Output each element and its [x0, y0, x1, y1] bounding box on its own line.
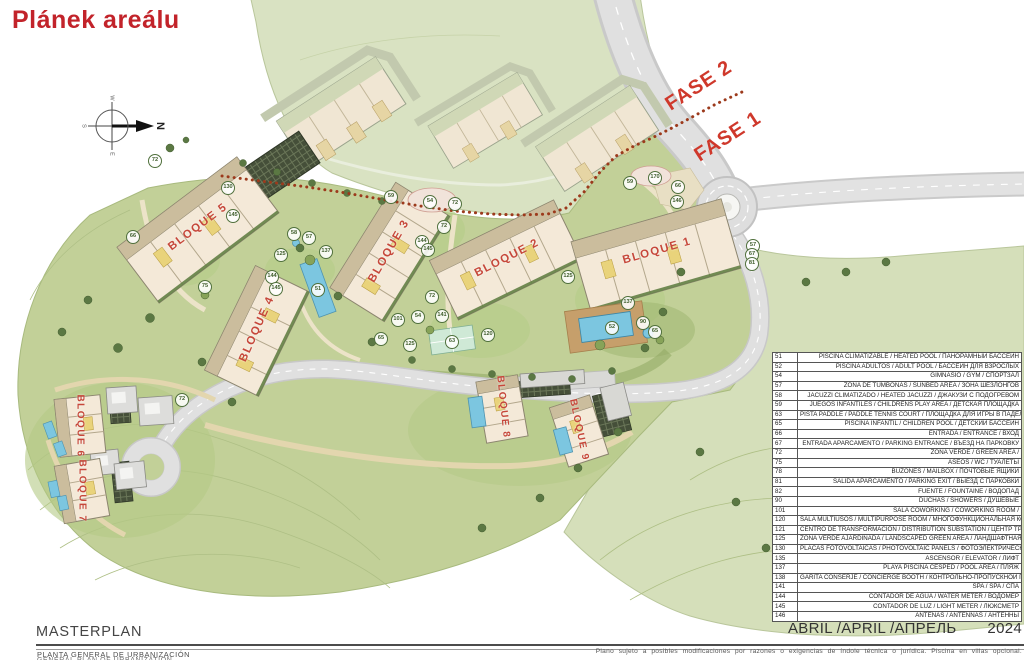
legend-description: JACUZZI CLIMATIZADO / HEATED JACUZZI / Д… [798, 391, 1022, 401]
block-label: BLOQUE 6 [75, 394, 86, 457]
legend-description: PLAYA PISCINA CESPED / POOL AREA / ПЛЯЖ [798, 564, 1022, 574]
legend-description: PISCINA ADULTOS / ADULT POOL / БАССЕЙН Д… [798, 362, 1022, 372]
map-badge-72: 72 [175, 393, 189, 407]
map-badge-101: 101 [391, 313, 405, 327]
map-badge-66: 66 [126, 230, 140, 244]
map-badge-130: 130 [221, 181, 235, 195]
legend-number: 81 [773, 477, 798, 487]
map-badge-81: 81 [745, 257, 759, 271]
map-badge-65: 65 [374, 332, 388, 346]
legend-description: ZONA VERDE AJARDINADA / LANDSCAPED GREEN… [798, 535, 1022, 545]
compass-e-label: E [109, 152, 115, 156]
map-badge-125: 125 [403, 338, 417, 352]
legend-description: FUENTE / FOUNTAINE / ВОДОПАД [798, 487, 1022, 497]
legend-row: 72ZONA VERDE / GREEN AREA / [773, 448, 1022, 458]
map-badge-72: 72 [425, 290, 439, 304]
page-title: Plánek areálu [12, 6, 180, 35]
map-badge-72: 72 [437, 220, 451, 234]
date-row: ABRIL /APRIL /АПРЕЛЬ 2024 [788, 620, 1022, 637]
legend-row: 75ASEOS / WC / ТУАЛЕТЫ [773, 458, 1022, 468]
legend-row: 121CENTRO DE TRANSFORMACIÓN / DISTRIBUTI… [773, 525, 1022, 535]
map-badge-57: 57 [302, 231, 316, 245]
legend-number: 125 [773, 535, 798, 545]
legend-row: 135ASCENSOR / ELEVATOR / ЛИФТ [773, 554, 1022, 564]
legend-number: 135 [773, 554, 798, 564]
legend-description: CENTRO DE TRANSFORMACIÓN / DISTRIBUTION … [798, 525, 1022, 535]
legend-description: SALA COWORKING / COWORKING ROOM / [798, 506, 1022, 516]
legend-row: 65PISCINA INFANTIL / CHILDREN POOL / ДЕТ… [773, 420, 1022, 430]
legend-number: 72 [773, 448, 798, 458]
legend-row: 125ZONA VERDE AJARDINADA / LANDSCAPED GR… [773, 535, 1022, 545]
legend-row: 120SALA MULTIUSOS / MULTIPURPOSE ROOM / … [773, 516, 1022, 526]
map-badge-52: 52 [605, 321, 619, 335]
legend-row: 66ENTRADA / ENTRANCE / ВХОД [773, 429, 1022, 439]
legend-number: 145 [773, 602, 798, 612]
legend-description: GIMNASIO / GYM / СПОРТЗАЛ [798, 372, 1022, 382]
legend-description: PISCINA CLIMATIZABLE / HEATED POOL / ПАН… [798, 353, 1022, 363]
legend-number: 137 [773, 564, 798, 574]
legend-number: 51 [773, 353, 798, 363]
legend-row: 130PLACAS FOTOVOLTAICAS / PHOTOVOLTAIC P… [773, 544, 1022, 554]
map-badge-59: 59 [623, 176, 637, 190]
compass-w-label: W [109, 95, 115, 101]
map-badge-75: 75 [198, 280, 212, 294]
map-badge-145: 145 [421, 243, 435, 257]
legend-number: 90 [773, 496, 798, 506]
legend-number: 67 [773, 439, 798, 449]
legend-row: 82FUENTE / FOUNTAINE / ВОДОПАД [773, 487, 1022, 497]
legend-number: 101 [773, 506, 798, 516]
legend-row: 81SALIDA APARCAMENTO / PARKING EXIT / ВЫ… [773, 477, 1022, 487]
legend-row: 58JACUZZI CLIMATIZADO / HEATED JACUZZI /… [773, 391, 1022, 401]
legend-number: 82 [773, 487, 798, 497]
map-badge-72: 72 [148, 154, 162, 168]
map-badge-72: 72 [448, 197, 462, 211]
legend-row: 101SALA COWORKING / COWORKING ROOM / [773, 506, 1022, 516]
legend-row: 57ZONA DE TUMBONAS / SUNBED AREA / ЗОНА … [773, 381, 1022, 391]
map-badge-170: 170 [648, 171, 662, 185]
legend-number: 58 [773, 391, 798, 401]
map-badge-125: 125 [561, 270, 575, 284]
legend-description: SALA MULTIUSOS / MULTIPURPOSE ROOM / МНО… [798, 516, 1022, 526]
legend-row: 141SPA / SPA / СПА [773, 583, 1022, 593]
map-badge-66: 66 [671, 180, 685, 194]
legend-number: 54 [773, 372, 798, 382]
map-badge-137: 137 [319, 245, 333, 259]
legend-number: 57 [773, 381, 798, 391]
legend-number: 144 [773, 592, 798, 602]
legend-row: 63PISTA PADDLE / PADDLE TENNIS COURT / П… [773, 410, 1022, 420]
masterplan-page: N S W E Plánek areálu FASE 2 FASE 1 51PI… [0, 0, 1024, 660]
legend-number: 65 [773, 420, 798, 430]
legend-description: SALIDA APARCAMENTO / PARKING EXIT / ВЫЕЗ… [798, 477, 1022, 487]
legend-description: CONTADOR DE LUZ / LIGHT METER / ЛЮКСМЕТР [798, 602, 1022, 612]
legend-description: PLACAS FOTOVOLTAICAS / PHOTOVOLTAIC PANE… [798, 544, 1022, 554]
legend-number: 59 [773, 400, 798, 410]
legend-description: ASCENSOR / ELEVATOR / ЛИФТ [798, 554, 1022, 564]
map-badge-145: 145 [269, 282, 283, 296]
legend-row: 52PISCINA ADULTOS / ADULT POOL / БАССЕЙН… [773, 362, 1022, 372]
compass: N S W E [81, 95, 167, 156]
map-badge-51: 51 [311, 283, 325, 297]
map-badge-125: 125 [274, 248, 288, 262]
disclaimer-text: Plano sujeto a posibles modificaciones p… [560, 648, 1022, 655]
legend-number: 130 [773, 544, 798, 554]
legend-row: 145CONTADOR DE LUZ / LIGHT METER / ЛЮКСМ… [773, 602, 1022, 612]
legend-number: 66 [773, 429, 798, 439]
legend-description: JUEGOS INFANTILES / CHILDRENS PLAY AREA … [798, 400, 1022, 410]
compass-n-label: N [154, 122, 166, 130]
masterplan-title: MASTERPLAN [36, 624, 142, 640]
map-badge-54: 54 [411, 310, 425, 324]
map-badge-146: 146 [670, 195, 684, 209]
legend-number: 121 [773, 525, 798, 535]
map-badge-58: 58 [287, 227, 301, 241]
legend-row: 138GARITA CONSERJE / CONCIERGE BOOTH / К… [773, 573, 1022, 583]
map-badge-145: 145 [226, 209, 240, 223]
map-badge-141: 141 [435, 309, 449, 323]
legend-row: 51PISCINA CLIMATIZABLE / HEATED POOL / П… [773, 353, 1022, 363]
legend-description: ZONA DE TUMBONAS / SUNBED AREA / ЗОНА ШЕ… [798, 381, 1022, 391]
legend-description: PISCINA INFANTIL / CHILDREN POOL / ДЕТСК… [798, 420, 1022, 430]
legend-description: GARITA CONSERJE / CONCIERGE BOOTH / КОНТ… [798, 573, 1022, 583]
map-badge-63: 63 [445, 335, 459, 349]
date-year: 2024 [987, 620, 1022, 637]
map-badge-54: 54 [423, 195, 437, 209]
legend-description: ZONA VERDE / GREEN AREA / [798, 448, 1022, 458]
map-badge-59: 59 [384, 190, 398, 204]
legend-number: 52 [773, 362, 798, 372]
legend-number: 120 [773, 516, 798, 526]
legend-description: PISTA PADDLE / PADDLE TENNIS COURT / ПЛО… [798, 410, 1022, 420]
legend-row: 54GIMNASIO / GYM / СПОРТЗАЛ [773, 372, 1022, 382]
block-label: BLOQUE 7 [77, 459, 88, 522]
map-badge-65: 65 [648, 325, 662, 339]
legend-description: DUCHAS / SHOWERS / ДУШЕВЫЕ [798, 496, 1022, 506]
compass-s-label: S [81, 124, 87, 128]
legend-number: 141 [773, 583, 798, 593]
legend-row: 90DUCHAS / SHOWERS / ДУШЕВЫЕ [773, 496, 1022, 506]
date-label: ABRIL /APRIL /АПРЕЛЬ [788, 620, 957, 637]
legend-description: CONTADOR DE AGUA / WATER METER / ВОДОМЕР [798, 592, 1022, 602]
map-badge-120: 120 [481, 328, 495, 342]
map-badge-137: 137 [621, 296, 635, 310]
legend-description: ASEOS / WC / ТУАЛЕТЫ [798, 458, 1022, 468]
legend-row: 59JUEGOS INFANTILES / CHILDRENS PLAY ARE… [773, 400, 1022, 410]
legend-number: 75 [773, 458, 798, 468]
legend-number: 138 [773, 573, 798, 583]
legend-row: 137PLAYA PISCINA CESPED / POOL AREA / ПЛ… [773, 564, 1022, 574]
legend-row: 67ENTRADA APARCAMENTO / PARKING ENTRANCE… [773, 439, 1022, 449]
legend-number: 63 [773, 410, 798, 420]
legend-description: BUZONES / MAILBOX / ПОЧТОВЫЕ ЯЩИКИ [798, 468, 1022, 478]
legend-description: ENTRADA APARCAMENTO / PARKING ENTRANCE /… [798, 439, 1022, 449]
legend-number: 78 [773, 468, 798, 478]
legend-table: 51PISCINA CLIMATIZABLE / HEATED POOL / П… [772, 352, 1022, 622]
legend-row: 78BUZONES / MAILBOX / ПОЧТОВЫЕ ЯЩИКИ [773, 468, 1022, 478]
legend-description: ENTRADA / ENTRANCE / ВХОД [798, 429, 1022, 439]
legend-description: SPA / SPA / СПА [798, 583, 1022, 593]
legend-row: 144CONTADOR DE AGUA / WATER METER / ВОДО… [773, 592, 1022, 602]
